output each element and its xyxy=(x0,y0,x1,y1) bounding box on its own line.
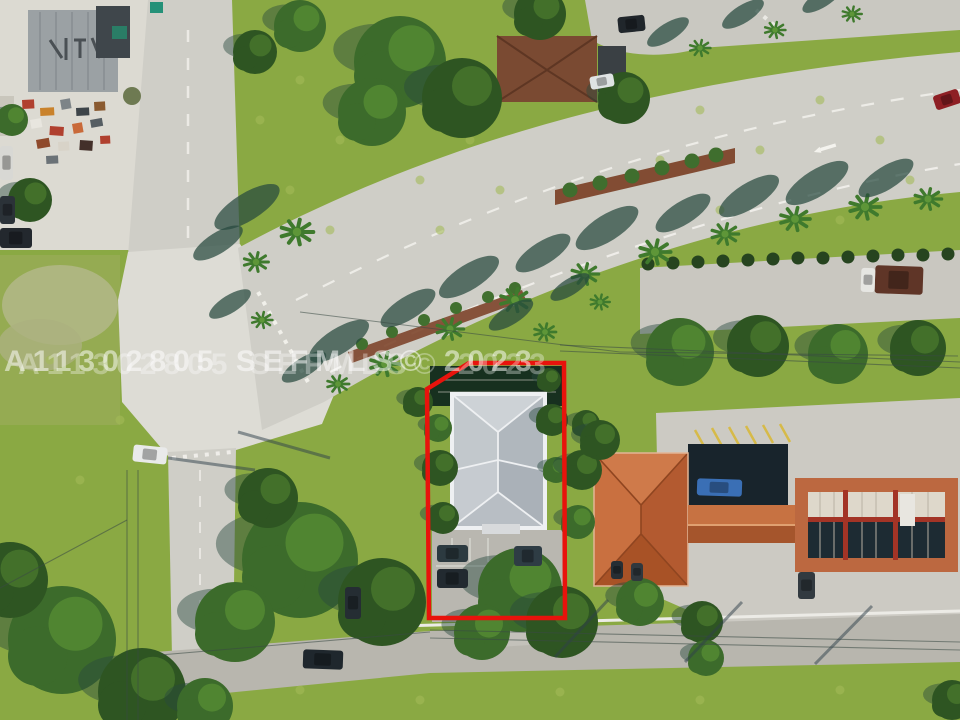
tree-highlight xyxy=(8,107,24,123)
suv-top-glass xyxy=(625,18,637,29)
speckle xyxy=(696,696,705,705)
truck-trailer xyxy=(875,265,924,295)
blue-pickup-glass xyxy=(709,482,728,494)
junk-item xyxy=(72,122,84,134)
tree-highlight xyxy=(672,325,706,359)
speckle xyxy=(326,226,335,235)
junk-item xyxy=(100,135,110,144)
white-van-yard xyxy=(0,146,13,180)
junk-item xyxy=(49,126,64,136)
dark-drive-through xyxy=(688,444,788,508)
dark-car-yard xyxy=(0,196,15,224)
palm-crown xyxy=(542,329,548,335)
palm-crown xyxy=(721,230,728,237)
parked-car-3-glass xyxy=(522,550,534,563)
tree-highlight xyxy=(364,85,398,119)
tree-highlight xyxy=(294,5,320,31)
parked-car-1 xyxy=(437,545,468,562)
tree-highlight xyxy=(618,77,644,103)
tree-highlight xyxy=(436,454,454,472)
palm-crown xyxy=(924,195,931,202)
tree-highlight xyxy=(439,505,455,521)
white-car-intersection-glass xyxy=(142,448,157,460)
junk-item xyxy=(94,101,105,111)
dark-car-lot-b-glass xyxy=(633,568,641,576)
truck-cab xyxy=(861,268,876,292)
speckle xyxy=(296,76,305,85)
palm-crown xyxy=(259,317,264,322)
median-bush xyxy=(563,183,578,198)
front-porch xyxy=(482,524,520,534)
tree-highlight xyxy=(595,424,615,444)
speckle xyxy=(556,688,565,697)
dark-car-lot-a-glass xyxy=(613,566,621,574)
median-bush xyxy=(685,154,700,169)
white-car-intersection xyxy=(132,444,168,464)
speckle xyxy=(816,96,825,105)
striped-carwash-building xyxy=(795,478,958,572)
yard-bush xyxy=(123,87,141,105)
car-bottom-road-glass xyxy=(314,653,331,666)
tree-highlight xyxy=(286,514,344,572)
palm-crown xyxy=(253,259,259,265)
hedge-bush xyxy=(842,251,855,264)
speckle xyxy=(116,416,125,425)
tree-highlight xyxy=(548,407,564,423)
junk-item xyxy=(22,99,34,109)
suv-top xyxy=(617,15,646,34)
speckle xyxy=(416,176,425,185)
verge-bush xyxy=(418,314,430,326)
palm-crown xyxy=(849,11,854,16)
hedge-bush xyxy=(942,248,955,261)
parked-car-2-glass xyxy=(446,572,459,584)
hedge-bush xyxy=(792,252,805,265)
dark-car-lot-b xyxy=(631,563,643,581)
drive-through-canopy xyxy=(688,505,800,543)
speckle xyxy=(256,116,265,125)
dumpster-green-2 xyxy=(150,2,163,13)
median-bush xyxy=(709,148,724,163)
hedge-bush xyxy=(867,250,880,263)
car-bottom-road xyxy=(303,649,344,669)
tree-highlight xyxy=(697,605,718,626)
palm-crown xyxy=(335,381,341,387)
mls-watermark: A11302805 SEFMLS© 2023 A11302805 SEFMLS©… xyxy=(4,345,553,381)
palm-crown xyxy=(651,248,659,256)
gray-car-canopy-glass xyxy=(801,580,812,591)
palm-crown xyxy=(697,45,702,50)
median-bush xyxy=(593,176,608,191)
blue-pickup xyxy=(697,478,743,497)
speckle xyxy=(286,186,295,195)
hedge-bush xyxy=(692,256,705,269)
tree-highlight xyxy=(1,550,39,588)
speckle xyxy=(436,226,445,235)
aerial-photo: A11302805 SEFMLS© 2023 A11302805 SEFMLS©… xyxy=(0,0,960,720)
palm-crown xyxy=(293,228,302,237)
aerial-scene: A11302805 SEFMLS© 2023 A11302805 SEFMLS©… xyxy=(0,0,960,720)
speckle xyxy=(756,146,765,155)
tree-highlight xyxy=(702,644,720,662)
hedge-bush xyxy=(917,249,930,262)
parked-car-3 xyxy=(514,546,542,566)
tree-highlight xyxy=(553,593,589,629)
dark-car-lot-a xyxy=(611,561,623,579)
palm-crown xyxy=(861,203,869,211)
speckle xyxy=(906,176,915,185)
junk-item xyxy=(58,141,69,151)
tree-highlight xyxy=(452,66,492,106)
tree-highlight xyxy=(634,583,658,607)
tree-highlight xyxy=(25,182,47,204)
verge-bush xyxy=(450,302,462,314)
truck-yard xyxy=(0,228,32,248)
speckle xyxy=(836,686,845,695)
parked-car-2 xyxy=(437,569,468,588)
speckle xyxy=(876,136,885,145)
speckle xyxy=(416,696,425,705)
speckle xyxy=(496,186,505,195)
tree-highlight xyxy=(250,34,272,56)
speckle xyxy=(76,476,85,485)
palm-crown xyxy=(791,215,799,223)
truck-yard-glass xyxy=(9,232,22,245)
white-vehicle-house-glass xyxy=(596,77,607,87)
palm-crown xyxy=(772,27,777,32)
white-van-yard-glass xyxy=(2,156,10,170)
tree-highlight xyxy=(574,508,591,525)
junk-item xyxy=(30,118,42,129)
palm-crown xyxy=(597,299,602,304)
hedge-bush xyxy=(817,252,830,265)
hedge-bush xyxy=(717,255,730,268)
tree-highlight xyxy=(198,684,226,712)
hedge-bush xyxy=(767,253,780,266)
worn-grass xyxy=(0,255,120,425)
tree-highlight xyxy=(49,597,103,651)
street-car-west-glass xyxy=(348,596,358,609)
tree-highlight xyxy=(750,321,781,352)
junk-item xyxy=(40,107,54,116)
median-bush xyxy=(625,169,640,184)
speckle xyxy=(696,106,705,115)
truck-trailer-glass xyxy=(888,271,909,290)
dark-car-yard-glass xyxy=(3,204,13,216)
tree-highlight xyxy=(911,326,939,354)
junk-item xyxy=(60,98,72,110)
tree-highlight xyxy=(371,567,415,611)
tree-highlight xyxy=(389,25,435,71)
tree-highlight xyxy=(831,330,861,360)
median-bush xyxy=(655,161,670,176)
dumpster-green xyxy=(112,26,127,39)
tree-highlight xyxy=(475,610,503,638)
tree-highlight xyxy=(261,474,291,504)
junk-item xyxy=(79,140,93,151)
speckle xyxy=(336,136,345,145)
speckle xyxy=(836,216,845,225)
verge-bush xyxy=(482,291,494,303)
hedge-bush xyxy=(892,249,905,262)
hedge-bush xyxy=(742,254,755,267)
parked-car-1-glass xyxy=(446,548,459,559)
watermark-text: A11302805 SEFMLS© 2023 xyxy=(4,345,539,378)
gray-car-canopy xyxy=(798,572,815,599)
junk-item xyxy=(46,155,58,164)
tree-highlight xyxy=(225,590,265,630)
speckle xyxy=(296,686,305,695)
street-car-west xyxy=(345,587,361,619)
junk-item xyxy=(76,107,89,116)
truck-cab-glass xyxy=(863,275,872,285)
tree-highlight xyxy=(435,417,449,431)
verge-bush xyxy=(386,326,398,338)
